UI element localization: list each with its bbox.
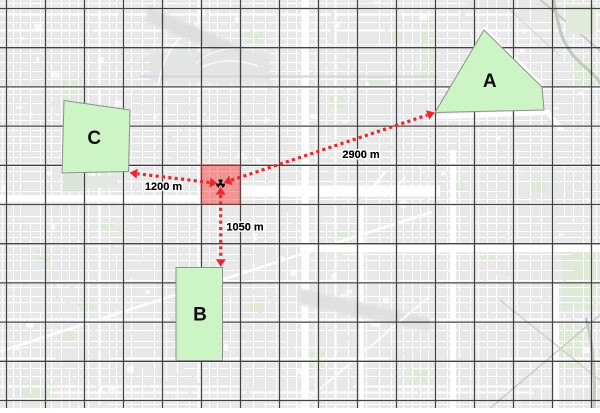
svg-text:1050 m: 1050 m	[226, 221, 264, 233]
svg-text:C: C	[87, 128, 101, 149]
svg-text:1200 m: 1200 m	[145, 181, 183, 193]
svg-text:B: B	[193, 304, 207, 325]
svg-text:A: A	[483, 71, 497, 92]
svg-text:2900 m: 2900 m	[342, 149, 380, 161]
